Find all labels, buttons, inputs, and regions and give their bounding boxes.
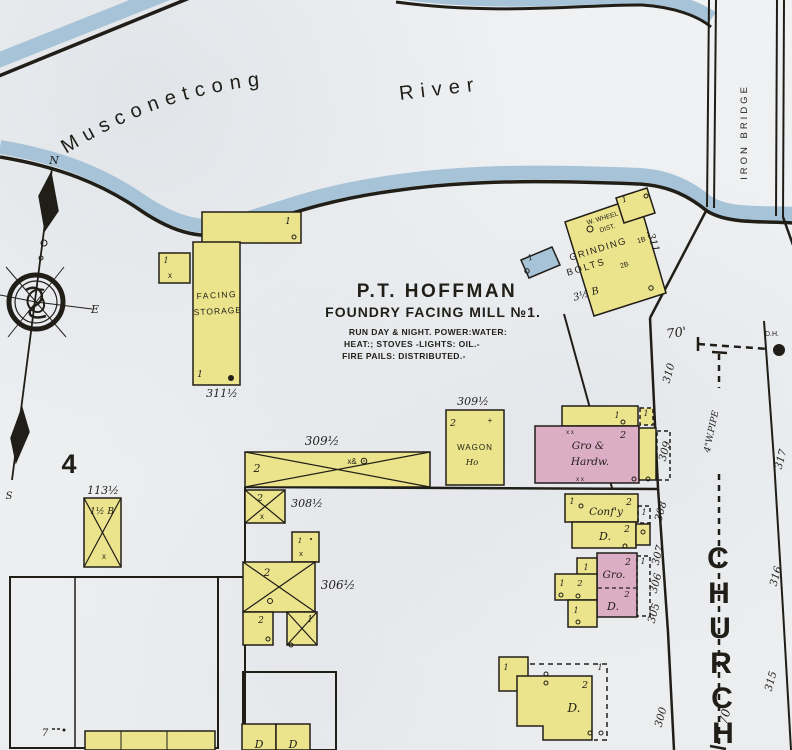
church-street-letter: U <box>709 612 731 645</box>
hydrant-dash-line <box>698 344 768 349</box>
outbuilding <box>568 600 597 627</box>
iron-bridge-rail <box>707 0 709 207</box>
storey-number: 1 <box>163 256 168 265</box>
mill-note: FIRE PAILS: DISTRIBUTED.- <box>342 351 466 361</box>
symbol-x: x <box>168 271 172 280</box>
dwelling-label: D <box>288 738 298 750</box>
storey-number: 2 <box>263 567 271 579</box>
church-street-letter: R <box>710 647 732 680</box>
symbol-dot <box>363 460 365 462</box>
compass-south-label: S <box>6 491 13 502</box>
block-number: 4 <box>61 449 76 479</box>
storey-number: 1 <box>583 563 588 572</box>
church-street-letter: H <box>708 577 730 610</box>
storey-number: 1 <box>307 615 313 625</box>
dwelling-label: D <box>254 738 264 750</box>
river-south-bank-line <box>0 157 792 235</box>
street-number: 317 <box>773 448 790 471</box>
mill-note: HEAT:; STOVES -LIGHTS: OIL.- <box>344 339 480 349</box>
mill-title: FOUNDRY FACING MILL №1. <box>325 304 541 320</box>
compass-needle-tail <box>11 408 29 462</box>
house-number: 309½ <box>305 434 340 448</box>
house-number: 311½ <box>206 387 238 400</box>
house-number: 308½ <box>291 497 323 510</box>
mill-title: P.T. HOFFMAN <box>357 281 518 302</box>
distance-label: 70' <box>666 325 688 343</box>
hydrant-dot <box>773 344 785 356</box>
house-number: 7 <box>42 728 49 739</box>
symbol-dot <box>63 729 66 732</box>
compass-ray <box>36 267 64 302</box>
dwelling-label: D. <box>598 530 611 543</box>
wagon-house-label: Ho <box>465 458 479 468</box>
church-street-letter: C <box>711 682 733 715</box>
pipe-tee <box>712 352 727 353</box>
dwelling-main <box>517 676 592 740</box>
street-number: 300 <box>653 706 670 729</box>
storey-number: 1½ B <box>90 506 114 517</box>
map-sheet: MusconetcongRiverIRON BRIDGE11FACINGSTOR… <box>0 0 792 750</box>
confectionery-label: Conf'y <box>589 506 624 518</box>
road-edge <box>650 209 707 318</box>
symbol-circle <box>599 731 603 735</box>
river-word-label-textpath: River <box>398 73 482 105</box>
storey-number: 1 <box>569 497 574 506</box>
symbol-plus: + <box>488 416 493 425</box>
symbol-x: x <box>102 552 106 561</box>
bottom-row-building <box>85 731 215 750</box>
compass-needle-head <box>39 173 58 230</box>
storey-number: 2 <box>576 579 582 589</box>
storey-number: 1 <box>559 579 564 588</box>
storey-number: 1 <box>643 409 648 418</box>
map-svg: MusconetcongRiverIRON BRIDGE11FACINGSTOR… <box>0 0 792 750</box>
storey-number: 1 <box>640 557 645 566</box>
storey-number: 1 <box>503 663 508 672</box>
iron-bridge-rail <box>776 0 777 216</box>
water-pipe-label: 4"W.PIPE <box>703 409 722 454</box>
street-number: 309 <box>657 440 674 463</box>
musconetcong-river-label-textpath: Musconetcong <box>57 68 267 158</box>
storey-number: 2 <box>581 680 588 691</box>
symbol-x: x x <box>576 477 584 483</box>
large-outline-building <box>10 577 218 748</box>
storey-number: 1 <box>614 411 619 420</box>
river-word-label: River <box>398 73 482 105</box>
compass-north-label: N <box>48 154 59 167</box>
storey-number: 2 <box>625 498 632 508</box>
storey-number: 2 <box>256 493 263 504</box>
street-number: 305 <box>646 602 663 625</box>
house-number: 309½ <box>457 395 489 408</box>
house-number: 113½ <box>87 484 119 497</box>
storey-number: 2 <box>257 616 264 626</box>
storey-number: 1 <box>285 217 291 227</box>
storey-number: 2 <box>623 590 629 600</box>
symbol-x: x& <box>347 457 357 466</box>
storey-number: 2 <box>623 525 630 535</box>
dwelling-label: D. <box>566 701 580 715</box>
hydrant-label: D.H. <box>765 331 779 338</box>
symbol-dot <box>228 375 234 381</box>
compass-east-label: E <box>90 303 99 316</box>
gro-hardware-rear <box>562 406 638 426</box>
symbol-x: x <box>260 512 264 521</box>
storey-number: 1 <box>597 663 602 672</box>
street-number: 306 <box>648 572 665 595</box>
symbol-dot <box>310 538 312 540</box>
storey-number: 1 <box>298 536 303 545</box>
symbol-x: x <box>299 549 303 558</box>
outbuilding <box>292 532 319 562</box>
storey-number: 2 <box>624 558 631 568</box>
street-number: 310 <box>661 362 678 385</box>
church-street-letter: H <box>712 717 734 750</box>
iron-bridge-label: IRON BRIDGE <box>739 84 750 180</box>
house-number: 306½ <box>321 578 356 592</box>
storey-number: 1 <box>573 606 578 615</box>
storey-number: 2 <box>253 462 261 475</box>
storey-number: 2 <box>619 430 626 441</box>
gro-hardware-label: Hardw. <box>570 456 609 468</box>
mill-note: RUN DAY & NIGHT. POWER:WATER: <box>349 327 507 337</box>
river-south-water <box>0 147 792 226</box>
iron-bridge-rail <box>783 0 784 217</box>
symbol-x: x x <box>566 430 574 436</box>
storey-number: 1 <box>197 370 203 380</box>
street-number: 308 <box>653 500 670 523</box>
grocery-label: Gro. <box>603 569 626 581</box>
wagon-house-label: WAGON <box>457 443 493 452</box>
facing-storage-label: FACING <box>196 289 237 301</box>
street-number: 315 <box>763 670 780 693</box>
grinding-mill-annex <box>616 188 655 223</box>
gro-hardware-side <box>639 428 656 480</box>
iron-bridge-rail <box>714 0 716 208</box>
storey-number: 2 <box>449 418 456 429</box>
dwelling-label: D. <box>606 600 619 613</box>
storey-number: 1 <box>641 508 646 517</box>
gro-hardware-label: Gro & <box>572 440 604 452</box>
church-street-letter: C <box>707 542 729 575</box>
river-north-bank-line <box>0 0 192 78</box>
musconetcong-river-label: Musconetcong <box>57 68 267 158</box>
